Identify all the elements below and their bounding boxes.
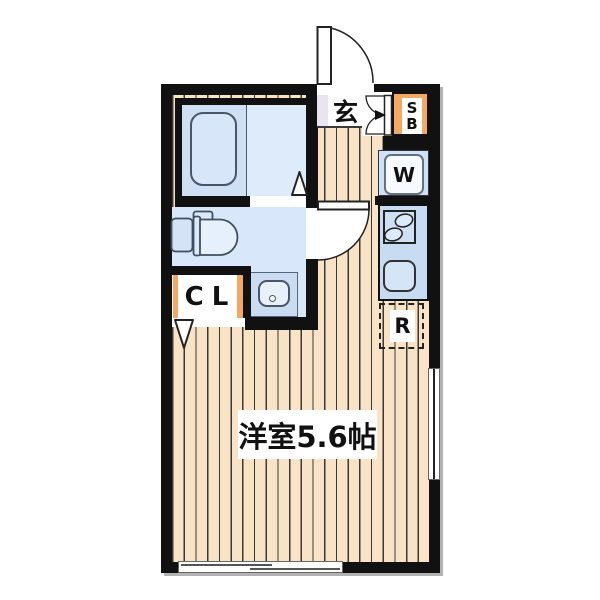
- window-bottom-sash-left: [181, 564, 272, 566]
- washbasin-sink: [258, 280, 290, 307]
- washbasin-drain: [269, 295, 276, 302]
- bathroom-door-opening: [250, 196, 307, 207]
- shoe-box-label-line1: S: [407, 100, 418, 116]
- shoe-box-door-area: [362, 92, 392, 136]
- shoe-box-label: S B: [402, 98, 422, 134]
- window-right-sash-line: [433, 369, 435, 479]
- washer-pan: W: [384, 154, 424, 195]
- floor-plan: CL 玄 S B W R 洋室5.6帖: [0, 0, 600, 600]
- wall-washroom-mainroom: [245, 317, 318, 330]
- bathtub: [190, 112, 237, 186]
- entrance-door-swing-area: [318, 28, 373, 84]
- closet-label: CL: [178, 281, 237, 313]
- refrigerator-label: R: [390, 310, 415, 342]
- kitchen-sink: [383, 260, 416, 292]
- entrance-door-arc: [331, 28, 373, 83]
- entrance-label: 玄: [328, 95, 363, 126]
- main-room-label: 洋室5.6帖: [238, 410, 377, 459]
- window-bottom: [178, 561, 343, 573]
- entrance-door-leaf: [318, 27, 332, 84]
- shoe-box-label-line2: B: [406, 116, 417, 132]
- closet-door-opening: [172, 318, 245, 327]
- closet-right-wall: [243, 266, 251, 318]
- wall-below-shoebox: [383, 136, 440, 150]
- closet-top-wall: [162, 266, 251, 275]
- stove: [383, 210, 416, 244]
- window-bottom-sash-right: [250, 568, 340, 570]
- bathroom-dry-side: [246, 105, 307, 196]
- closet-accent-right: [237, 275, 243, 318]
- washroom-door-opening: [306, 208, 318, 259]
